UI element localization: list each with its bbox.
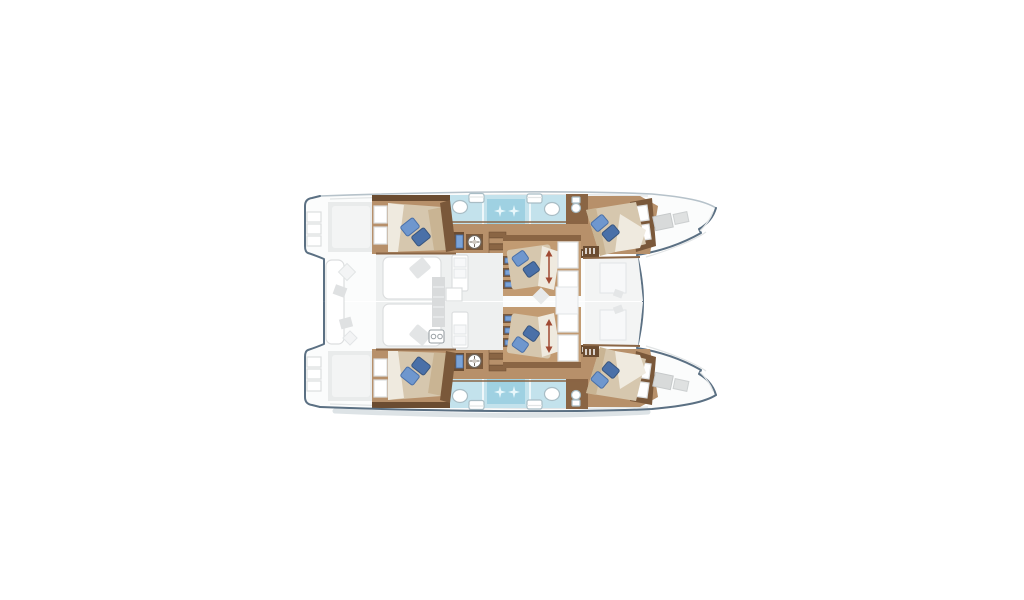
toilet-icon bbox=[527, 194, 542, 203]
center-hatch-panel bbox=[556, 287, 578, 314]
stove-icon bbox=[429, 330, 444, 343]
wardrobe bbox=[558, 242, 578, 268]
toilet-icon bbox=[469, 194, 484, 203]
runner-rug bbox=[432, 277, 445, 327]
bow-hatch-icon bbox=[653, 213, 674, 230]
sink-icon bbox=[545, 203, 560, 216]
aft-side-deck-panel bbox=[332, 206, 370, 248]
galley-sink bbox=[454, 258, 466, 267]
bow-hatch-icon bbox=[673, 212, 689, 225]
top-half bbox=[305, 192, 716, 301]
bottom-half bbox=[305, 302, 716, 411]
stern-steps bbox=[307, 212, 321, 246]
galley-island bbox=[446, 288, 462, 301]
shower-pan bbox=[487, 199, 525, 224]
galley-sink bbox=[454, 269, 466, 278]
catamaran-floor-plan bbox=[0, 0, 1024, 600]
jug-icon bbox=[572, 197, 580, 203]
fan-icon bbox=[468, 236, 481, 249]
foredeck-area bbox=[583, 256, 643, 301]
cabin-top-wall bbox=[503, 235, 581, 241]
bathroom-strip bbox=[450, 194, 588, 225]
cabin-window bbox=[374, 206, 387, 223]
cabin-top-trim bbox=[372, 195, 452, 201]
cabin-window bbox=[374, 227, 387, 244]
foredeck-seat bbox=[600, 263, 626, 293]
jug-icon bbox=[572, 204, 581, 213]
locker-icon bbox=[456, 235, 463, 248]
sink-icon bbox=[453, 201, 468, 214]
